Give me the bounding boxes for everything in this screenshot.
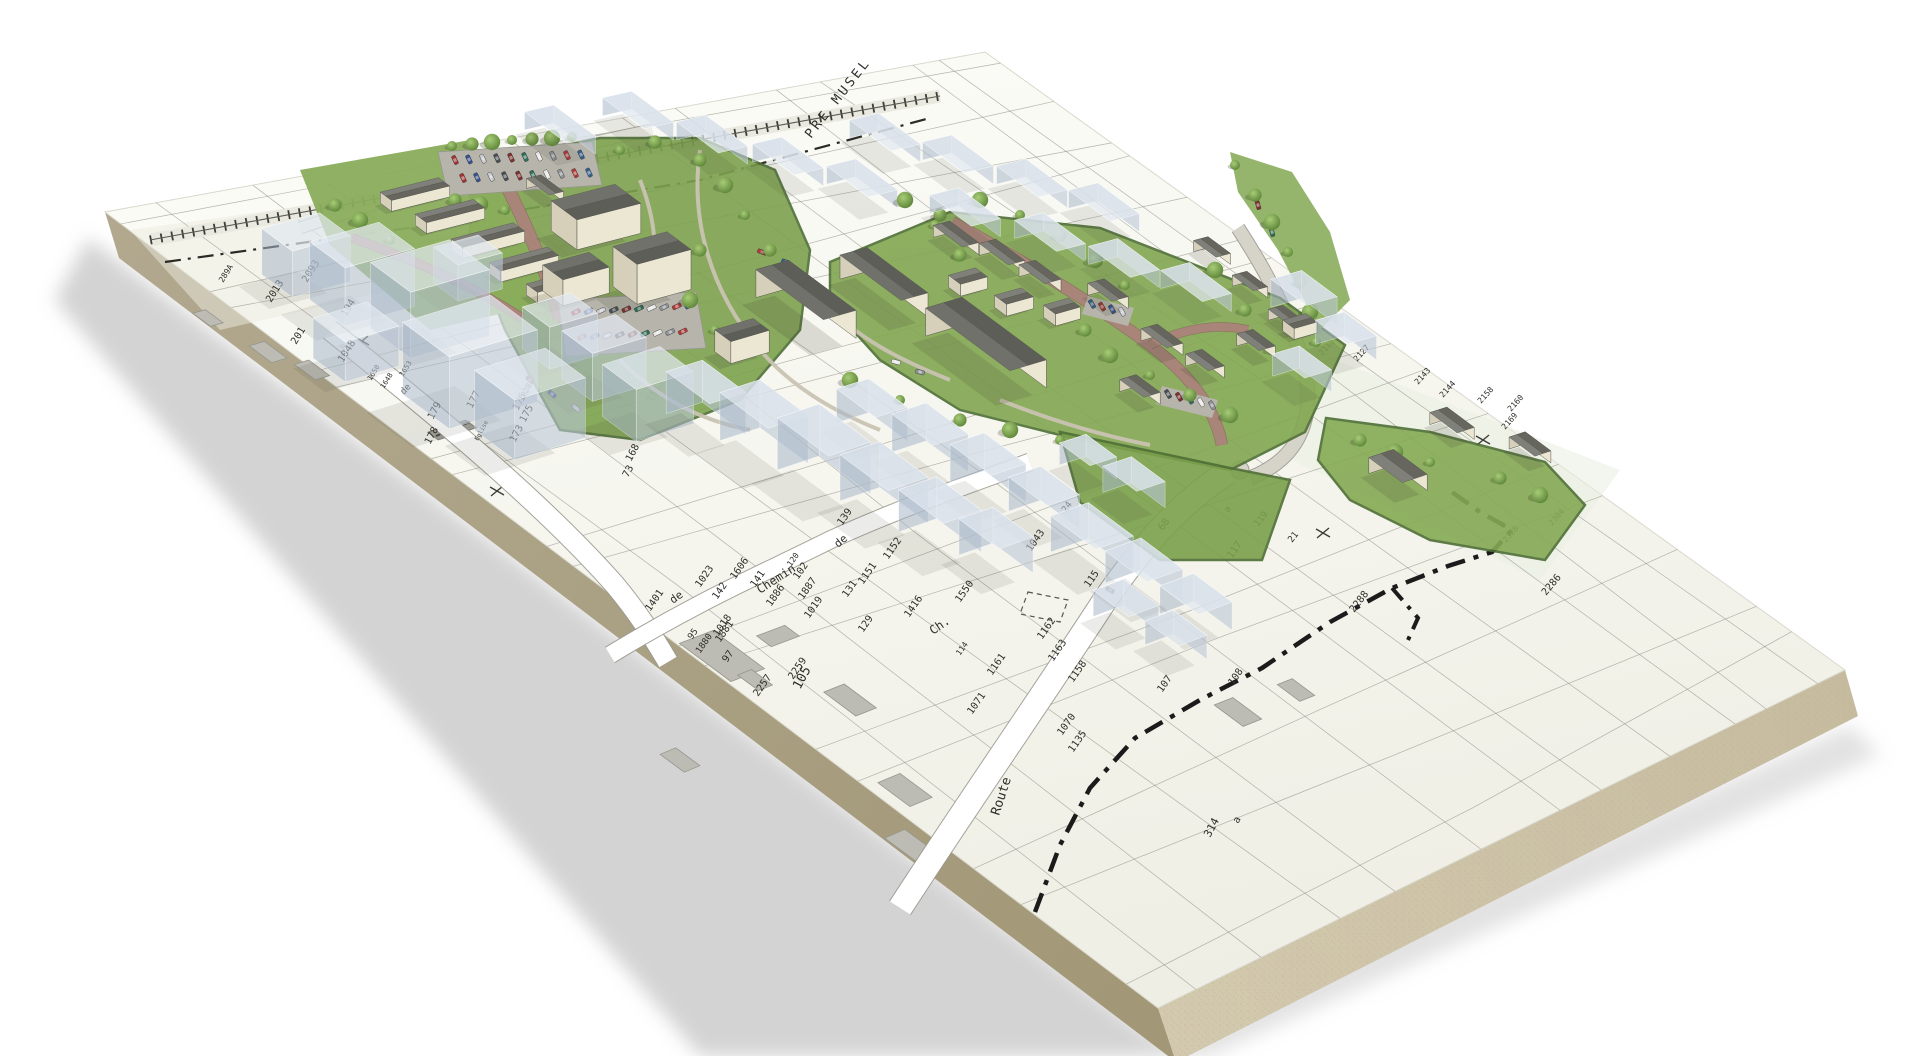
tree — [1353, 433, 1366, 446]
tree — [447, 141, 457, 151]
tree — [484, 134, 500, 150]
site-model-stage: 1513151516873177179178176175173102820932… — [0, 0, 1928, 1056]
tree — [500, 205, 510, 215]
tree — [1493, 471, 1506, 484]
tree — [328, 198, 341, 211]
parcel-label: 2160 — [1506, 393, 1526, 413]
tree — [897, 192, 913, 208]
tree — [953, 248, 966, 261]
tree — [693, 153, 706, 166]
tree — [465, 137, 478, 150]
tree — [693, 243, 706, 256]
tree — [1248, 188, 1261, 201]
tree — [1183, 388, 1196, 401]
tree — [717, 177, 733, 193]
tree — [1002, 422, 1018, 438]
tree — [615, 145, 625, 155]
parcel-label: 2158 — [1476, 385, 1496, 405]
tree — [507, 135, 517, 145]
tree — [1230, 160, 1240, 170]
tree — [740, 210, 750, 220]
tree — [763, 243, 776, 256]
tree — [1145, 370, 1155, 380]
tree — [1207, 262, 1223, 278]
tree — [648, 135, 661, 148]
tree — [1222, 407, 1238, 423]
tree — [1120, 280, 1130, 290]
tree — [1102, 347, 1118, 363]
tree — [1264, 214, 1280, 230]
tree — [1425, 457, 1435, 467]
tree — [1078, 323, 1091, 336]
tree — [1238, 303, 1251, 316]
site-model-3d: 1513151516873177179178176175173102820932… — [0, 0, 1928, 1056]
tree — [1532, 487, 1548, 503]
tree — [682, 292, 698, 308]
tree — [1283, 247, 1293, 257]
